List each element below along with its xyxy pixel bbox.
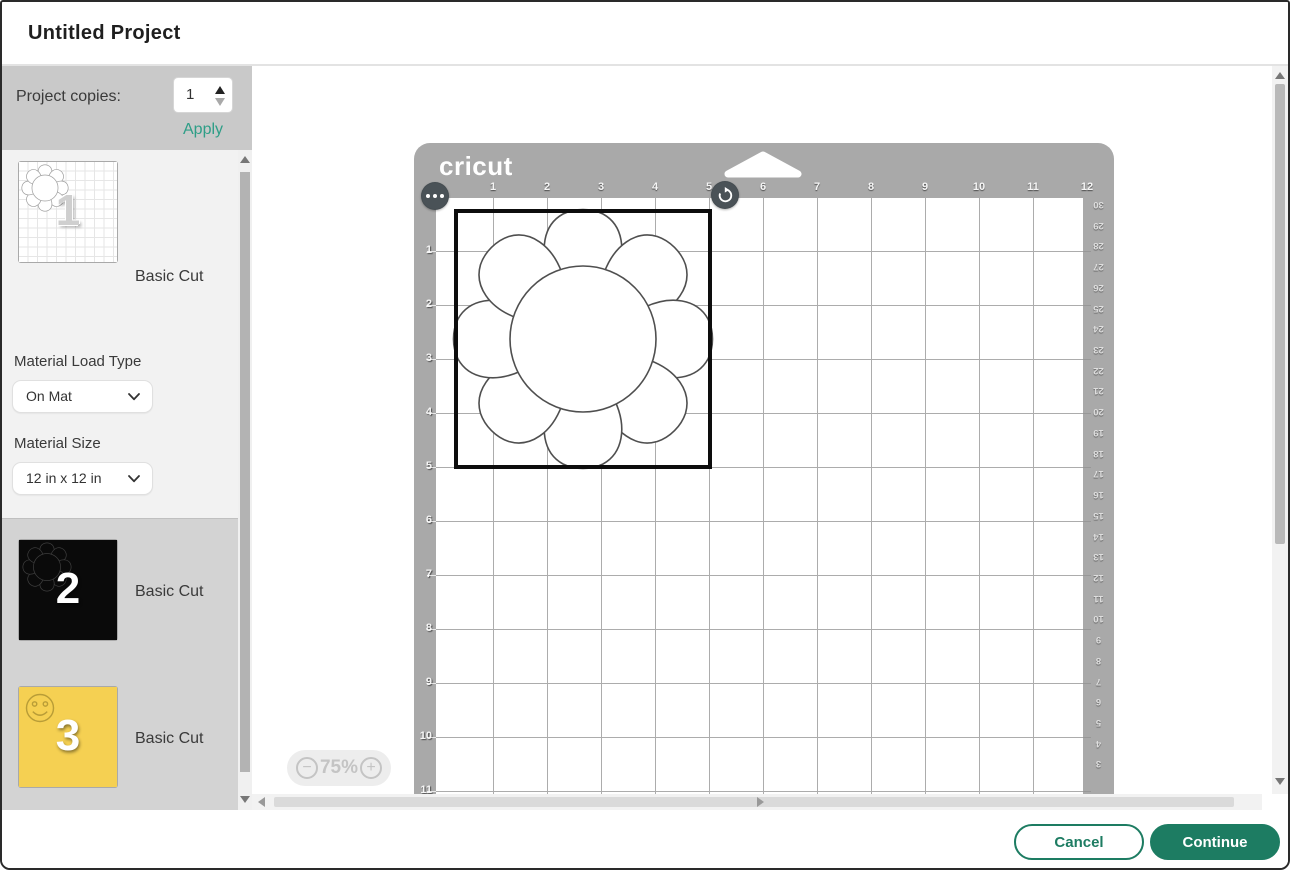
dots-icon xyxy=(426,194,430,198)
project-copies-value: 1 xyxy=(186,86,194,103)
ruler-right-number: 11 xyxy=(1083,593,1114,604)
ruler-right-number: 30 xyxy=(1083,199,1114,210)
ruler-right-number: 29 xyxy=(1083,220,1114,231)
ruler-tick xyxy=(427,359,436,360)
ruler-left-number: 9 xyxy=(414,676,432,688)
ruler-top-number: 9 xyxy=(922,181,928,193)
mat-notch-icon xyxy=(722,151,804,178)
ruler-top-number: 6 xyxy=(760,181,766,193)
ruler-right-number: 16 xyxy=(1083,489,1114,500)
sidebar-scrollbar[interactable] xyxy=(238,150,252,810)
ruler-tick xyxy=(1083,413,1091,414)
ruler-top-number: 1 xyxy=(490,181,496,193)
ruler-right-number: 23 xyxy=(1083,344,1114,355)
ruler-right-number: 17 xyxy=(1083,468,1114,479)
spinner-down-icon[interactable] xyxy=(215,98,225,106)
ruler-right-number: 19 xyxy=(1083,427,1114,438)
ruler-tick xyxy=(1083,467,1091,468)
page-title: Untitled Project xyxy=(28,22,181,45)
material-load-type-select[interactable]: On Mat xyxy=(12,380,153,413)
ruler-right-number: 20 xyxy=(1083,406,1114,417)
ruler-right-number: 9 xyxy=(1083,634,1114,645)
ruler-top-number: 3 xyxy=(598,181,604,193)
ruler-left-number: 5 xyxy=(414,460,432,472)
material-load-type-value: On Mat xyxy=(26,388,72,404)
project-copies-label: Project copies: xyxy=(16,88,121,106)
ruler-right-number: 14 xyxy=(1083,531,1114,542)
apply-button[interactable]: Apply xyxy=(183,121,223,139)
ruler-right-number: 5 xyxy=(1083,717,1114,728)
ruler-left-number: 6 xyxy=(414,514,432,526)
zoom-in-icon[interactable]: + xyxy=(360,757,382,779)
ruler-right-number: 6 xyxy=(1083,696,1114,707)
scroll-up-icon[interactable] xyxy=(240,156,250,163)
material-size-label: Material Size xyxy=(14,435,101,452)
ruler-tick xyxy=(427,737,436,738)
ruler-right-number: 12 xyxy=(1083,572,1114,583)
material-load-type-label: Material Load Type xyxy=(14,353,141,370)
mat-thumbnail-3[interactable]: cricut 3 xyxy=(18,686,118,788)
ruler-right-number: 26 xyxy=(1083,282,1114,293)
ruler-tick xyxy=(427,683,436,684)
ruler-right-number: 24 xyxy=(1083,323,1114,334)
mat-layer-label: Basic Cut xyxy=(135,583,203,601)
ruler-right-number: 7 xyxy=(1083,676,1114,687)
ruler-tick xyxy=(1083,683,1091,684)
ruler-left-number: 11 xyxy=(414,784,432,794)
ruler-right: 3029282726252423222120191817161514131211… xyxy=(1083,143,1114,794)
ruler-left-number: 2 xyxy=(414,298,432,310)
ruler-left-number: 8 xyxy=(414,622,432,634)
scrollbar-thumb[interactable] xyxy=(240,172,250,772)
ruler-top-number: 11 xyxy=(1027,181,1039,193)
ruler-tick xyxy=(427,521,436,522)
scrollbar-thumb[interactable] xyxy=(1275,84,1285,544)
ruler-right-number: 10 xyxy=(1083,613,1114,624)
ruler-left-number: 1 xyxy=(414,244,432,256)
ruler-right-number: 8 xyxy=(1083,655,1114,666)
ruler-tick xyxy=(1083,521,1091,522)
other-mats-panel: cricut 2 Basic Cut cricut xyxy=(2,518,238,810)
chevron-down-icon xyxy=(128,393,140,401)
ruler-tick xyxy=(1083,791,1091,792)
ruler-right-number: 13 xyxy=(1083,551,1114,562)
mat-number: 1 xyxy=(19,186,117,236)
mat-canvas: cricut 123456789101112 1234567891011 302… xyxy=(252,66,1262,794)
selection-bounding-box[interactable] xyxy=(454,209,712,469)
scroll-down-icon[interactable] xyxy=(1275,778,1285,785)
mat-number: 3 xyxy=(19,711,117,761)
ruler-right-number: 22 xyxy=(1083,365,1114,376)
ruler-right-number: 28 xyxy=(1083,240,1114,251)
ruler-top-number: 7 xyxy=(814,181,820,193)
spinner-up-icon[interactable] xyxy=(215,86,225,94)
scroll-up-icon[interactable] xyxy=(1275,72,1285,79)
header-bar: Untitled Project xyxy=(2,2,1288,66)
ruler-tick xyxy=(427,413,436,414)
ruler-right-number: 27 xyxy=(1083,261,1114,272)
mat-number: 2 xyxy=(19,564,117,614)
mat-thumbnail-1[interactable]: cricut xyxy=(18,161,118,263)
selected-mat-panel: cricut xyxy=(2,150,238,518)
scrollbar-thumb[interactable] xyxy=(274,797,1234,807)
ruler-top-number: 4 xyxy=(652,181,658,193)
rotate-icon xyxy=(717,187,734,204)
project-copies-panel: Project copies: 1 Apply xyxy=(2,66,252,150)
ruler-right-number: 21 xyxy=(1083,385,1114,396)
zoom-control: − 75% + xyxy=(287,750,391,786)
scroll-right-icon[interactable] xyxy=(757,797,764,807)
project-copies-input[interactable]: 1 xyxy=(174,78,232,112)
ruler-tick xyxy=(427,251,436,252)
chevron-down-icon xyxy=(128,475,140,483)
cricut-logo: cricut xyxy=(439,151,513,182)
material-size-value: 12 in x 12 in xyxy=(26,470,102,486)
ruler-right-number: 18 xyxy=(1083,448,1114,459)
continue-button[interactable]: Continue xyxy=(1150,824,1280,860)
mat-layer-label: Basic Cut xyxy=(135,268,203,286)
ruler-tick xyxy=(427,305,436,306)
footer-bar: Cancel Continue xyxy=(2,810,1288,870)
horizontal-scrollbar[interactable] xyxy=(252,794,1262,810)
ruler-tick xyxy=(427,629,436,630)
ruler-left-number: 4 xyxy=(414,406,432,418)
rotate-button[interactable] xyxy=(711,181,739,209)
ruler-right-number: 3 xyxy=(1083,758,1114,769)
ruler-tick xyxy=(1083,629,1091,630)
more-options-button[interactable] xyxy=(421,182,449,210)
ruler-left-number: 10 xyxy=(414,730,432,742)
ruler-tick xyxy=(1083,575,1091,576)
ruler-left-number: 3 xyxy=(414,352,432,364)
ruler-tick xyxy=(427,575,436,576)
scroll-down-icon[interactable] xyxy=(240,796,250,803)
ruler-right-number: 4 xyxy=(1083,738,1114,749)
vertical-scrollbar[interactable] xyxy=(1272,66,1288,794)
ruler-tick xyxy=(1083,305,1091,306)
ruler-top-number: 8 xyxy=(868,181,874,193)
ruler-left: 1234567891011 xyxy=(414,143,436,794)
cancel-button[interactable]: Cancel xyxy=(1014,824,1144,860)
ruler-tick xyxy=(427,467,436,468)
ruler-tick xyxy=(1083,359,1091,360)
ruler-tick xyxy=(1083,251,1091,252)
scroll-left-icon[interactable] xyxy=(258,797,265,807)
sidebar: Project copies: 1 Apply cricut xyxy=(2,66,252,810)
ruler-top: 123456789101112 xyxy=(414,179,1114,195)
ruler-top-number: 10 xyxy=(973,181,985,193)
material-size-select[interactable]: 12 in x 12 in xyxy=(12,462,153,495)
app-window: Untitled Project Project copies: 1 Apply… xyxy=(0,0,1290,870)
mat-thumbnail-2[interactable]: cricut 2 xyxy=(18,539,118,641)
ruler-right-number: 15 xyxy=(1083,510,1114,521)
ruler-tick xyxy=(427,791,436,792)
mat-layer-label: Basic Cut xyxy=(135,730,203,748)
ruler-top-number: 2 xyxy=(544,181,550,193)
ruler-left-number: 7 xyxy=(414,568,432,580)
ruler-tick xyxy=(1083,737,1091,738)
